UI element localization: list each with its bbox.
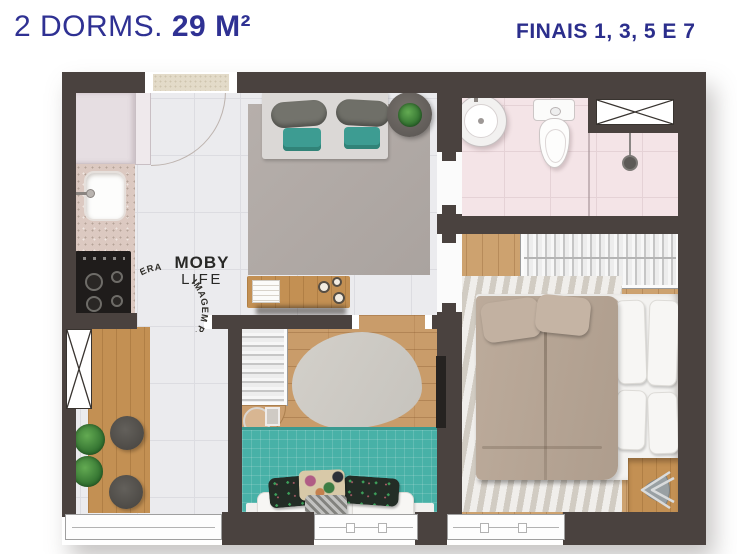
wardrobe-shelf-line — [524, 257, 676, 259]
cup — [333, 292, 345, 304]
sofa-cushion — [335, 99, 390, 128]
plant-on-table — [398, 103, 422, 127]
wall-segment — [237, 72, 443, 93]
stove-knobs — [83, 257, 125, 260]
wall-segment — [462, 216, 680, 234]
bed2-duvet-pillow — [479, 296, 542, 344]
toilet-seat — [545, 129, 566, 163]
tv-panel — [436, 356, 446, 428]
area-value: 29 M² — [172, 10, 251, 43]
shower-glass-partition — [588, 133, 590, 225]
door-jamb — [425, 315, 432, 329]
sink-drain — [478, 118, 484, 124]
duct-shaft-box — [596, 99, 674, 125]
bed2-pillow — [647, 391, 679, 454]
bathroom-sink — [455, 95, 507, 147]
floor-plan-page: 2 DORMS. 29 M² FINAIS 1, 3, 5 E 7 — [0, 0, 737, 554]
wall-segment — [563, 512, 680, 545]
window-bedroom2 — [447, 514, 565, 540]
toilet-flush-button — [550, 107, 561, 116]
shower-head — [622, 155, 638, 171]
bathroom-door-opening — [437, 152, 462, 214]
bed2-duvet-pillow — [534, 293, 592, 336]
teal-throw — [283, 128, 321, 151]
kitchen-faucet-knob — [86, 189, 95, 198]
wall-segment — [678, 72, 706, 545]
stove-burner — [86, 296, 102, 312]
teal-throw — [344, 127, 380, 149]
stove-burner — [111, 295, 123, 307]
cup — [332, 277, 342, 287]
wall-segment — [222, 512, 314, 545]
bedroom2-door-opening — [437, 234, 462, 312]
entry-door-mat — [151, 72, 231, 93]
duct-shaft-box — [66, 329, 92, 409]
fridge — [75, 92, 137, 164]
door-jamb — [352, 315, 359, 329]
watermark-brand-line1: MOBY — [175, 253, 230, 272]
plant — [72, 456, 103, 487]
console-desk-shadow — [256, 306, 346, 315]
dining-stool — [110, 416, 144, 450]
dining-stool — [109, 475, 143, 509]
watermark-brand-line2: LIFE — [181, 271, 223, 288]
bed2-pillow — [615, 300, 648, 385]
stove — [75, 251, 131, 317]
cup — [318, 281, 330, 293]
window-bedroom1 — [314, 514, 418, 540]
door-stop — [442, 303, 456, 312]
wall-segment — [415, 512, 447, 545]
wall-segment — [437, 214, 462, 234]
door-stop — [442, 205, 456, 214]
bed2-pillow — [647, 300, 680, 387]
bed2-pillow — [615, 389, 647, 450]
plant — [74, 424, 105, 455]
door-stop — [442, 152, 456, 161]
stove-burner — [85, 273, 103, 291]
stove-burner — [111, 271, 123, 283]
watermark: IMAGEM PRELIMINAR E SUJEITA A ALTERAÇÕES… — [140, 208, 264, 332]
duvet-fold-line — [482, 446, 602, 449]
finals-label: FINAIS 1, 3, 5 E 7 — [516, 20, 695, 44]
wall-segment — [437, 72, 462, 152]
page-title: 2 DORMS. 29 M² — [14, 10, 251, 44]
wall-segment — [62, 72, 76, 517]
dorms-label: 2 DORMS. — [14, 10, 172, 43]
window-dining — [65, 514, 222, 540]
bedroom2-chair — [632, 462, 682, 518]
wall-segment — [62, 313, 137, 329]
sofa-cushion — [270, 99, 328, 129]
entry-door-leaf — [135, 91, 151, 165]
bed1-pillow-patterned — [342, 475, 400, 507]
door-stop — [442, 234, 456, 243]
vanity-organizer — [265, 407, 280, 426]
wall-segment — [228, 315, 242, 520]
